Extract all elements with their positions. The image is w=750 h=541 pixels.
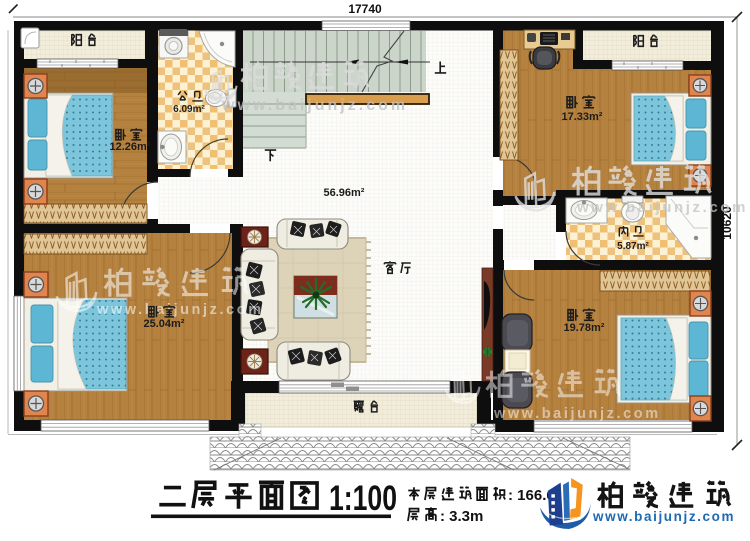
svg-text:1:100: 1:100: [329, 478, 397, 517]
svg-text:25.04m²: 25.04m²: [144, 318, 185, 330]
svg-text:: 3.3m: : 3.3m: [440, 508, 483, 525]
svg-text:: 166.6: : 166.6: [508, 487, 555, 504]
svg-text:56.96m²: 56.96m²: [324, 187, 365, 199]
svg-text:www.baijunjz.com: www.baijunjz.com: [592, 509, 735, 524]
svg-text:6.09m²: 6.09m²: [173, 104, 205, 115]
svg-text:19.78m²: 19.78m²: [564, 322, 605, 334]
svg-text:5.87m²: 5.87m²: [617, 241, 649, 252]
svg-text:www.baijunjz.com: www.baijunjz.com: [576, 199, 748, 216]
svg-text:17.33m²: 17.33m²: [562, 111, 603, 123]
svg-text:www.baijunjz.com: www.baijunjz.com: [96, 302, 264, 318]
svg-text:www.baijunjz.com: www.baijunjz.com: [493, 406, 661, 422]
svg-text:12.26m²: 12.26m²: [110, 141, 151, 153]
svg-text:www.baijunjz.com: www.baijunjz.com: [221, 97, 408, 114]
svg-text:17740: 17740: [348, 2, 382, 16]
